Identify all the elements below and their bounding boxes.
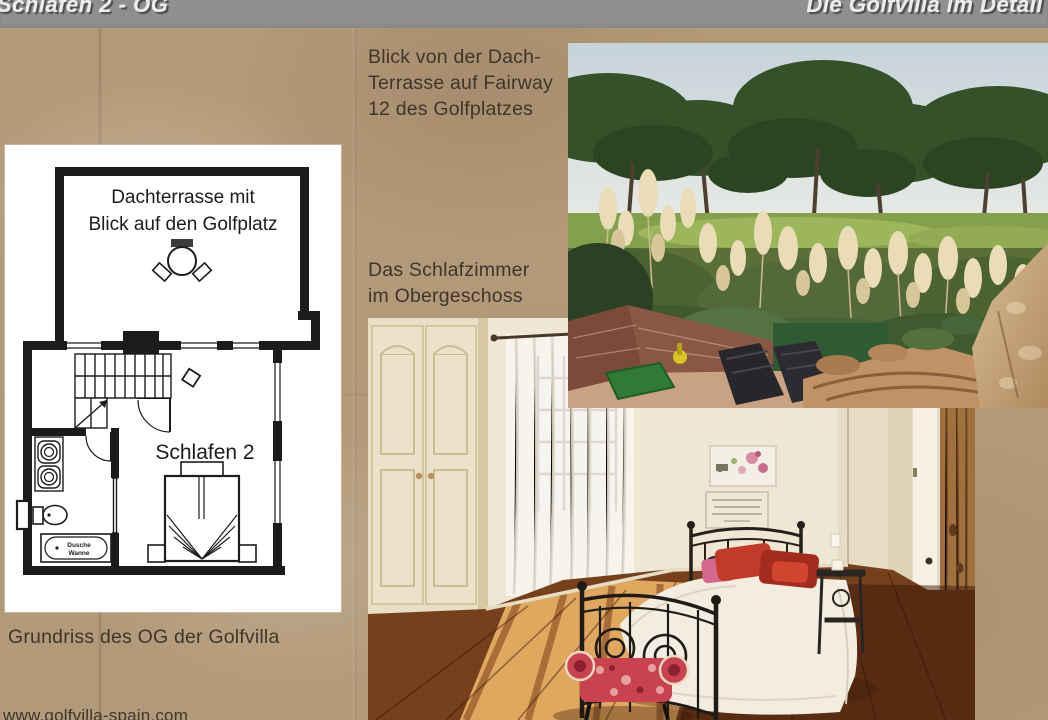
terrace-label-line2: Blick auf den Golfplatz <box>88 214 277 235</box>
floral-wall-plaque <box>710 446 776 486</box>
golf-photo-art <box>568 43 1048 408</box>
door-knob <box>926 558 933 565</box>
page-title-left: Schlafen 2 - OG <box>0 0 168 18</box>
vine <box>941 315 985 335</box>
light-switch <box>831 534 840 547</box>
website-url: www.golfvilla-spain.com <box>3 703 188 720</box>
caption-line: 12 des Golfplatzes <box>368 96 553 122</box>
caption-line: Blick von der Dach- <box>368 44 553 70</box>
brochure-page: Schlafen 2 - OG Die Golfvilla im Detail … <box>0 0 1048 720</box>
wardrobe <box>368 318 488 616</box>
shower-label: Wanne <box>68 550 89 557</box>
wardrobe-knob <box>428 473 434 479</box>
caption-line: im Obergeschoss <box>368 283 529 309</box>
caption-line: Terrasse auf Fairway <box>368 70 553 96</box>
floorplan-panel: Dusche Wanne Dachterrasse mit <box>5 145 341 612</box>
wardrobe-knob <box>416 473 422 479</box>
wall-niche <box>17 501 29 529</box>
header-bar: Schlafen 2 - OG Die Golfvilla im Detail <box>0 0 1048 28</box>
golf-photo-caption: Blick von der Dach- Terrasse auf Fairway… <box>368 44 553 122</box>
bedroom-photo-caption: Das Schlafzimmer im Obergeschoss <box>368 257 529 309</box>
shower-tub-icon: Dusche Wanne <box>41 534 111 562</box>
page-title-right: Die Golfvilla im Detail <box>807 0 1043 18</box>
text-wall-plaque <box>706 492 768 528</box>
bedroom-label: Schlafen 2 <box>155 441 254 464</box>
caption-line: Das Schlafzimmer <box>368 257 529 283</box>
floorplan-caption: Grundriss des OG der Golfvilla <box>8 624 280 650</box>
golf-course-photo <box>568 43 1048 408</box>
floorplan-drawing: Dusche Wanne Dachterrasse mit <box>5 145 341 612</box>
terrace-label-line1: Dachterrasse mit <box>111 187 255 208</box>
shower-label: Dusche <box>67 542 91 549</box>
chimney-block <box>123 331 159 356</box>
